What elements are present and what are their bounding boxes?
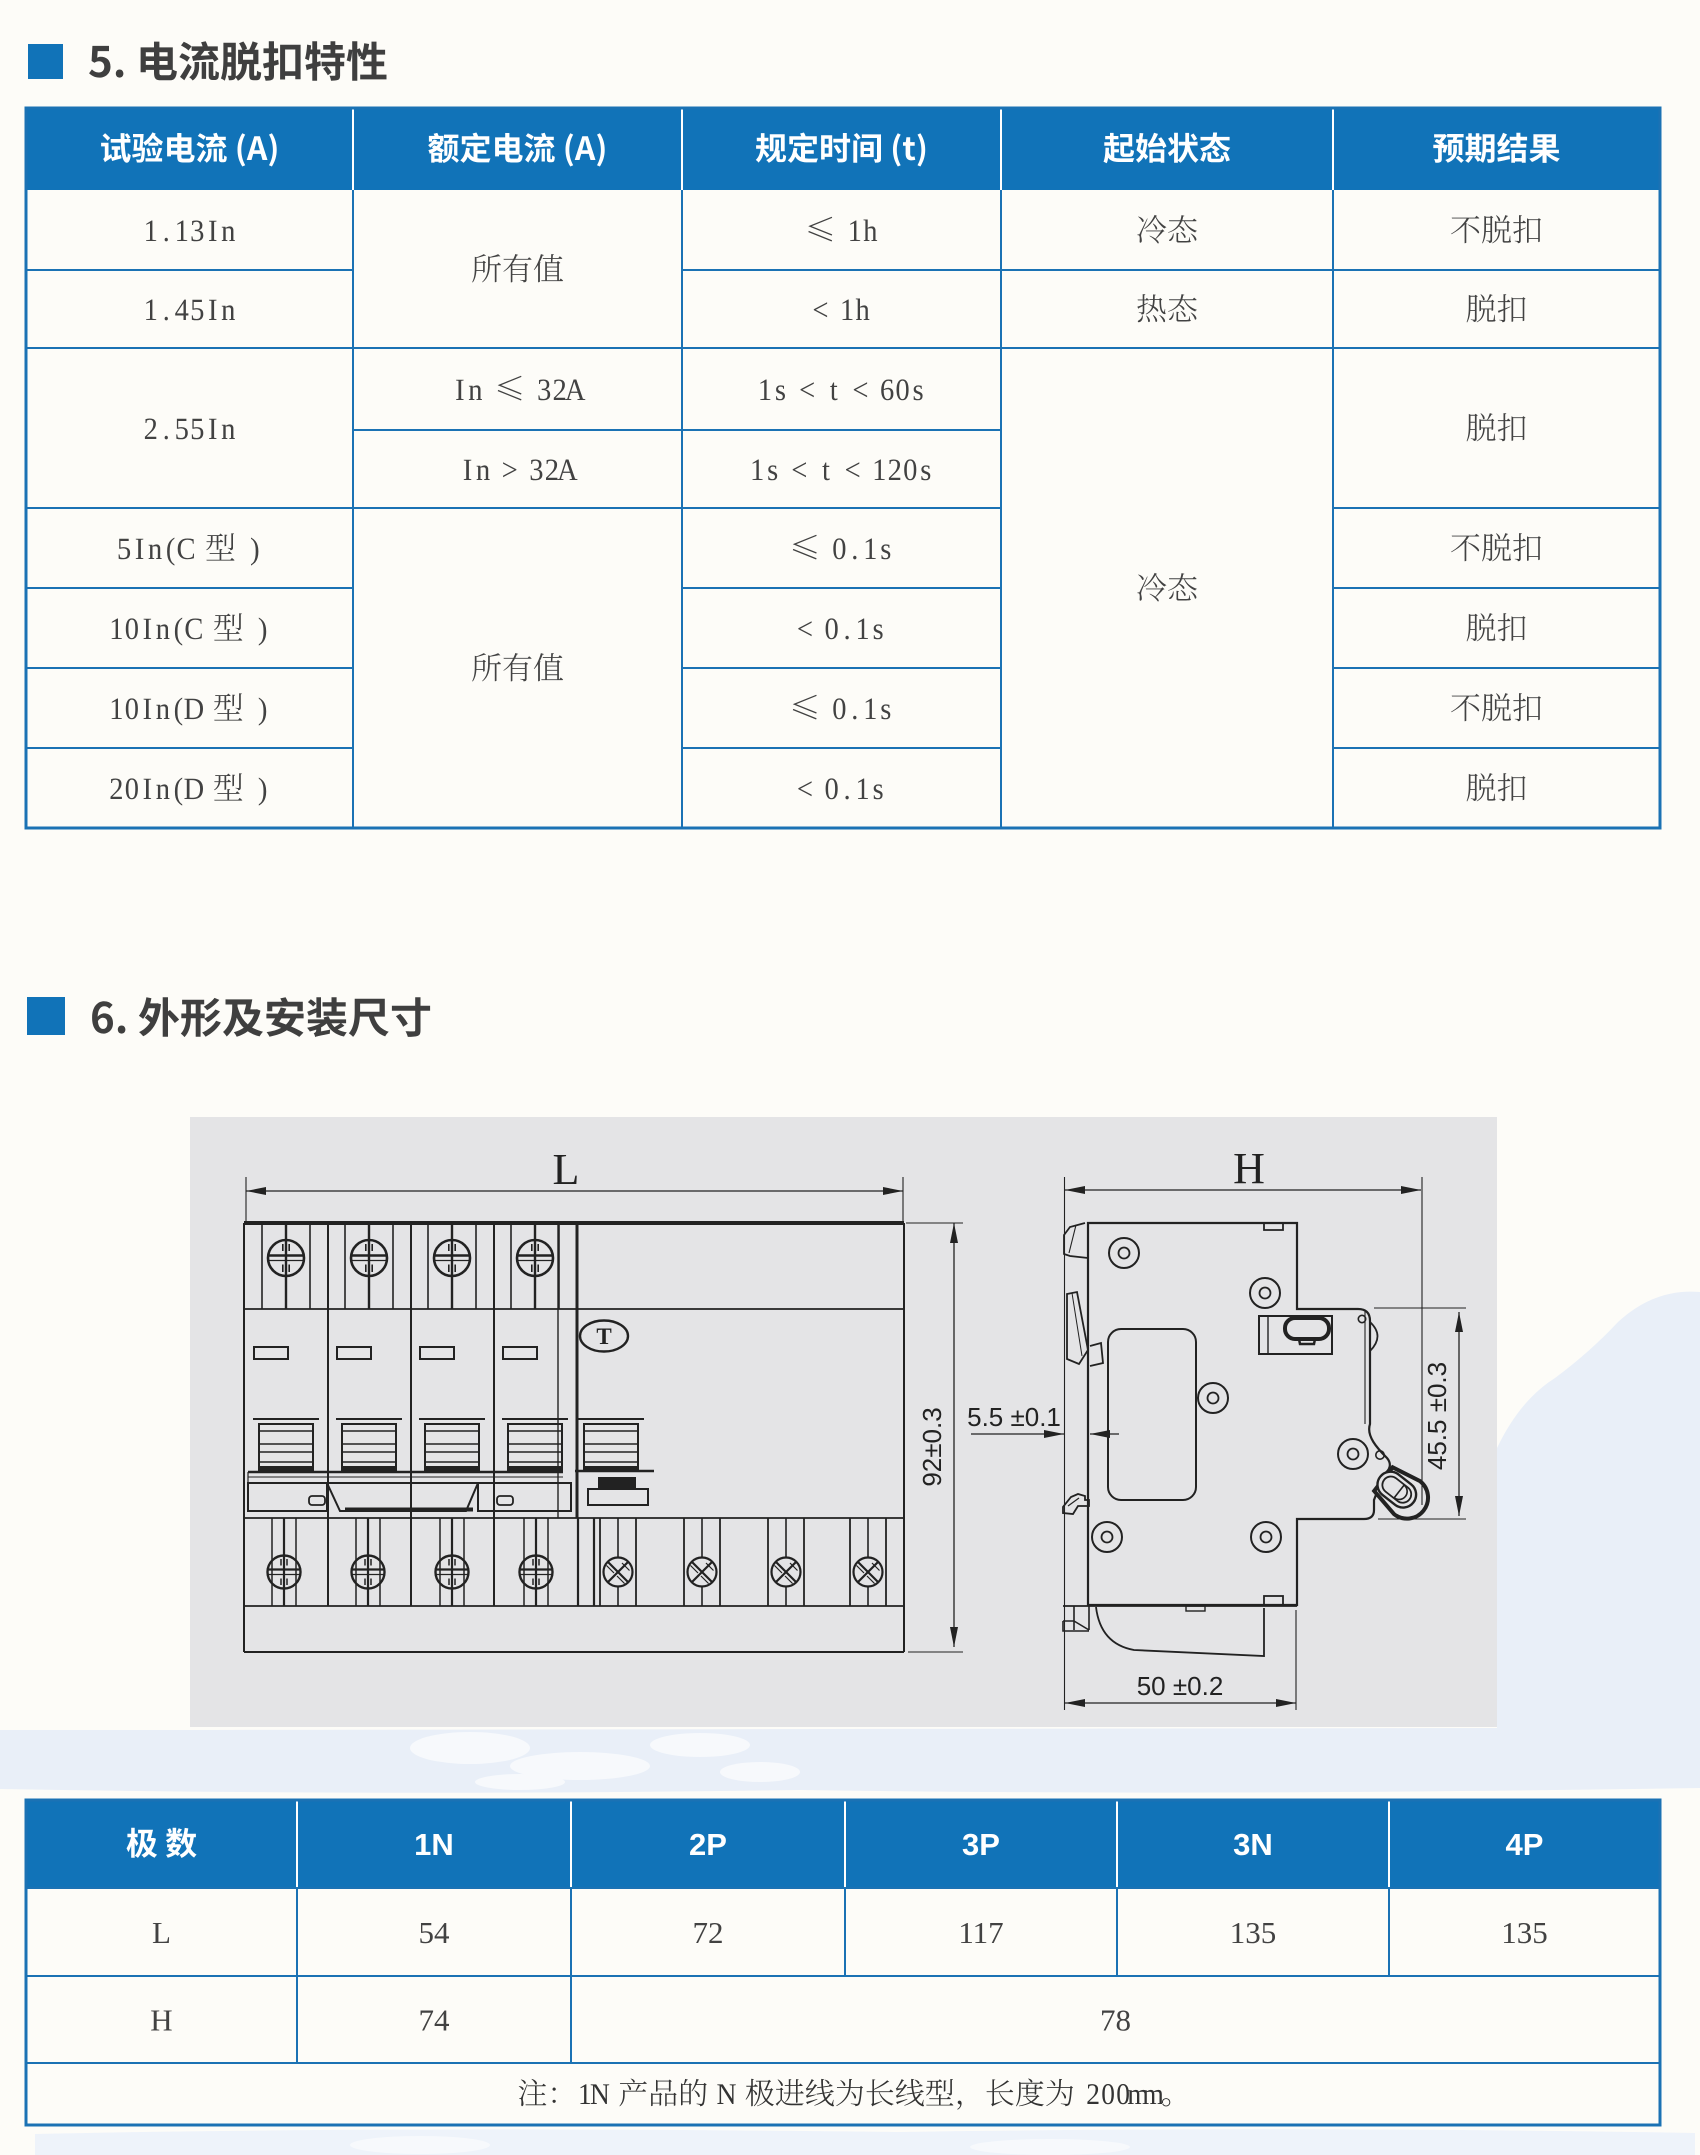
svg-text:135: 135: [1230, 1915, 1277, 1950]
svg-text:1N: 1N: [414, 1827, 454, 1862]
svg-text:74: 74: [419, 2003, 451, 2038]
svg-text:L: L: [553, 1145, 580, 1194]
svg-text:54: 54: [419, 1915, 451, 1950]
svg-text:135: 135: [1501, 1915, 1548, 1950]
svg-text:50 ±0.2: 50 ±0.2: [1137, 1671, 1224, 1701]
svg-text:4P: 4P: [1506, 1827, 1544, 1862]
svg-text:117: 117: [958, 1915, 1003, 1950]
svg-text:T: T: [596, 1324, 611, 1349]
svg-text:H: H: [150, 2003, 172, 2038]
svg-text:45.5 ±0.3: 45.5 ±0.3: [1422, 1362, 1452, 1470]
svg-text:2P: 2P: [689, 1827, 727, 1862]
svg-text:78: 78: [1100, 2003, 1131, 2038]
svg-text:L: L: [152, 1915, 171, 1950]
svg-text:3P: 3P: [962, 1827, 1000, 1862]
svg-text:72: 72: [693, 1915, 724, 1950]
svg-text:5.5 ±0.1: 5.5 ±0.1: [967, 1402, 1061, 1432]
svg-text:H: H: [1233, 1144, 1265, 1193]
svg-text:3N: 3N: [1233, 1827, 1273, 1862]
svg-text:92±0.3: 92±0.3: [917, 1407, 947, 1486]
